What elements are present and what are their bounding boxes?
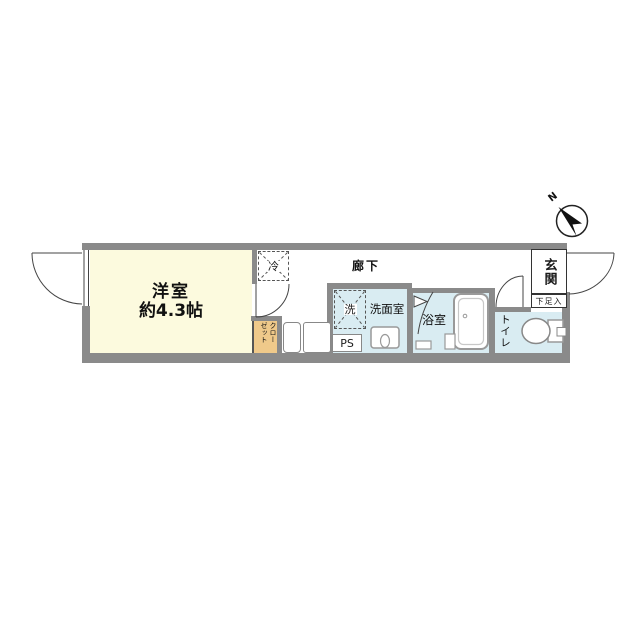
bathroom-top-wall — [407, 288, 495, 293]
bathroom-label: 浴室 — [416, 311, 452, 328]
bottom-wall — [82, 353, 570, 363]
washer-label: 洗 — [344, 304, 357, 315]
hallway-label: 廊下 — [352, 257, 380, 274]
entrance-area: 玄関 — [531, 249, 567, 294]
closet-label: クローゼット — [255, 322, 277, 349]
closet-left-line — [252, 321, 254, 353]
kitchen-unit-left — [283, 322, 301, 353]
main-room-right-wall — [252, 250, 257, 284]
pipe-space-label: PS — [340, 337, 354, 350]
main-room-size: 約4.3帖 — [90, 296, 252, 321]
closet-right-wall — [277, 321, 282, 353]
washroom-top-wall — [327, 283, 412, 289]
washer-space: 洗 — [334, 290, 366, 329]
compass-north-label: N — [547, 191, 560, 205]
left-wall-lower — [82, 306, 90, 353]
entrance-label: 玄関 — [540, 258, 559, 286]
floorplan-canvas: 冷 洗 PS 玄関 下足入 洋室 約4.3帖 廊下 洗面室 浴室 トイレ クロー… — [0, 0, 640, 640]
pipe-space: PS — [332, 334, 362, 352]
entrance-door-arc — [569, 253, 614, 294]
toilet-label: トイレ — [498, 314, 513, 356]
compass-circle-icon — [557, 206, 588, 237]
shoe-cabinet: 下足入 — [531, 294, 567, 308]
bathroom-right-wall — [489, 288, 495, 353]
refrigerator-space: 冷 — [258, 251, 289, 281]
room-door-arc — [256, 284, 289, 317]
kitchen-unit-right — [303, 322, 331, 353]
toilet-top-wall — [495, 307, 531, 312]
toilet-door-arc — [496, 276, 523, 307]
top-wall — [82, 243, 567, 250]
washroom-label: 洗面室 — [365, 301, 409, 317]
compass-needle-icon — [559, 207, 583, 236]
refrigerator-label: 冷 — [267, 261, 280, 272]
shoe-cabinet-label: 下足入 — [536, 296, 563, 307]
window-swing-arc — [32, 253, 82, 304]
